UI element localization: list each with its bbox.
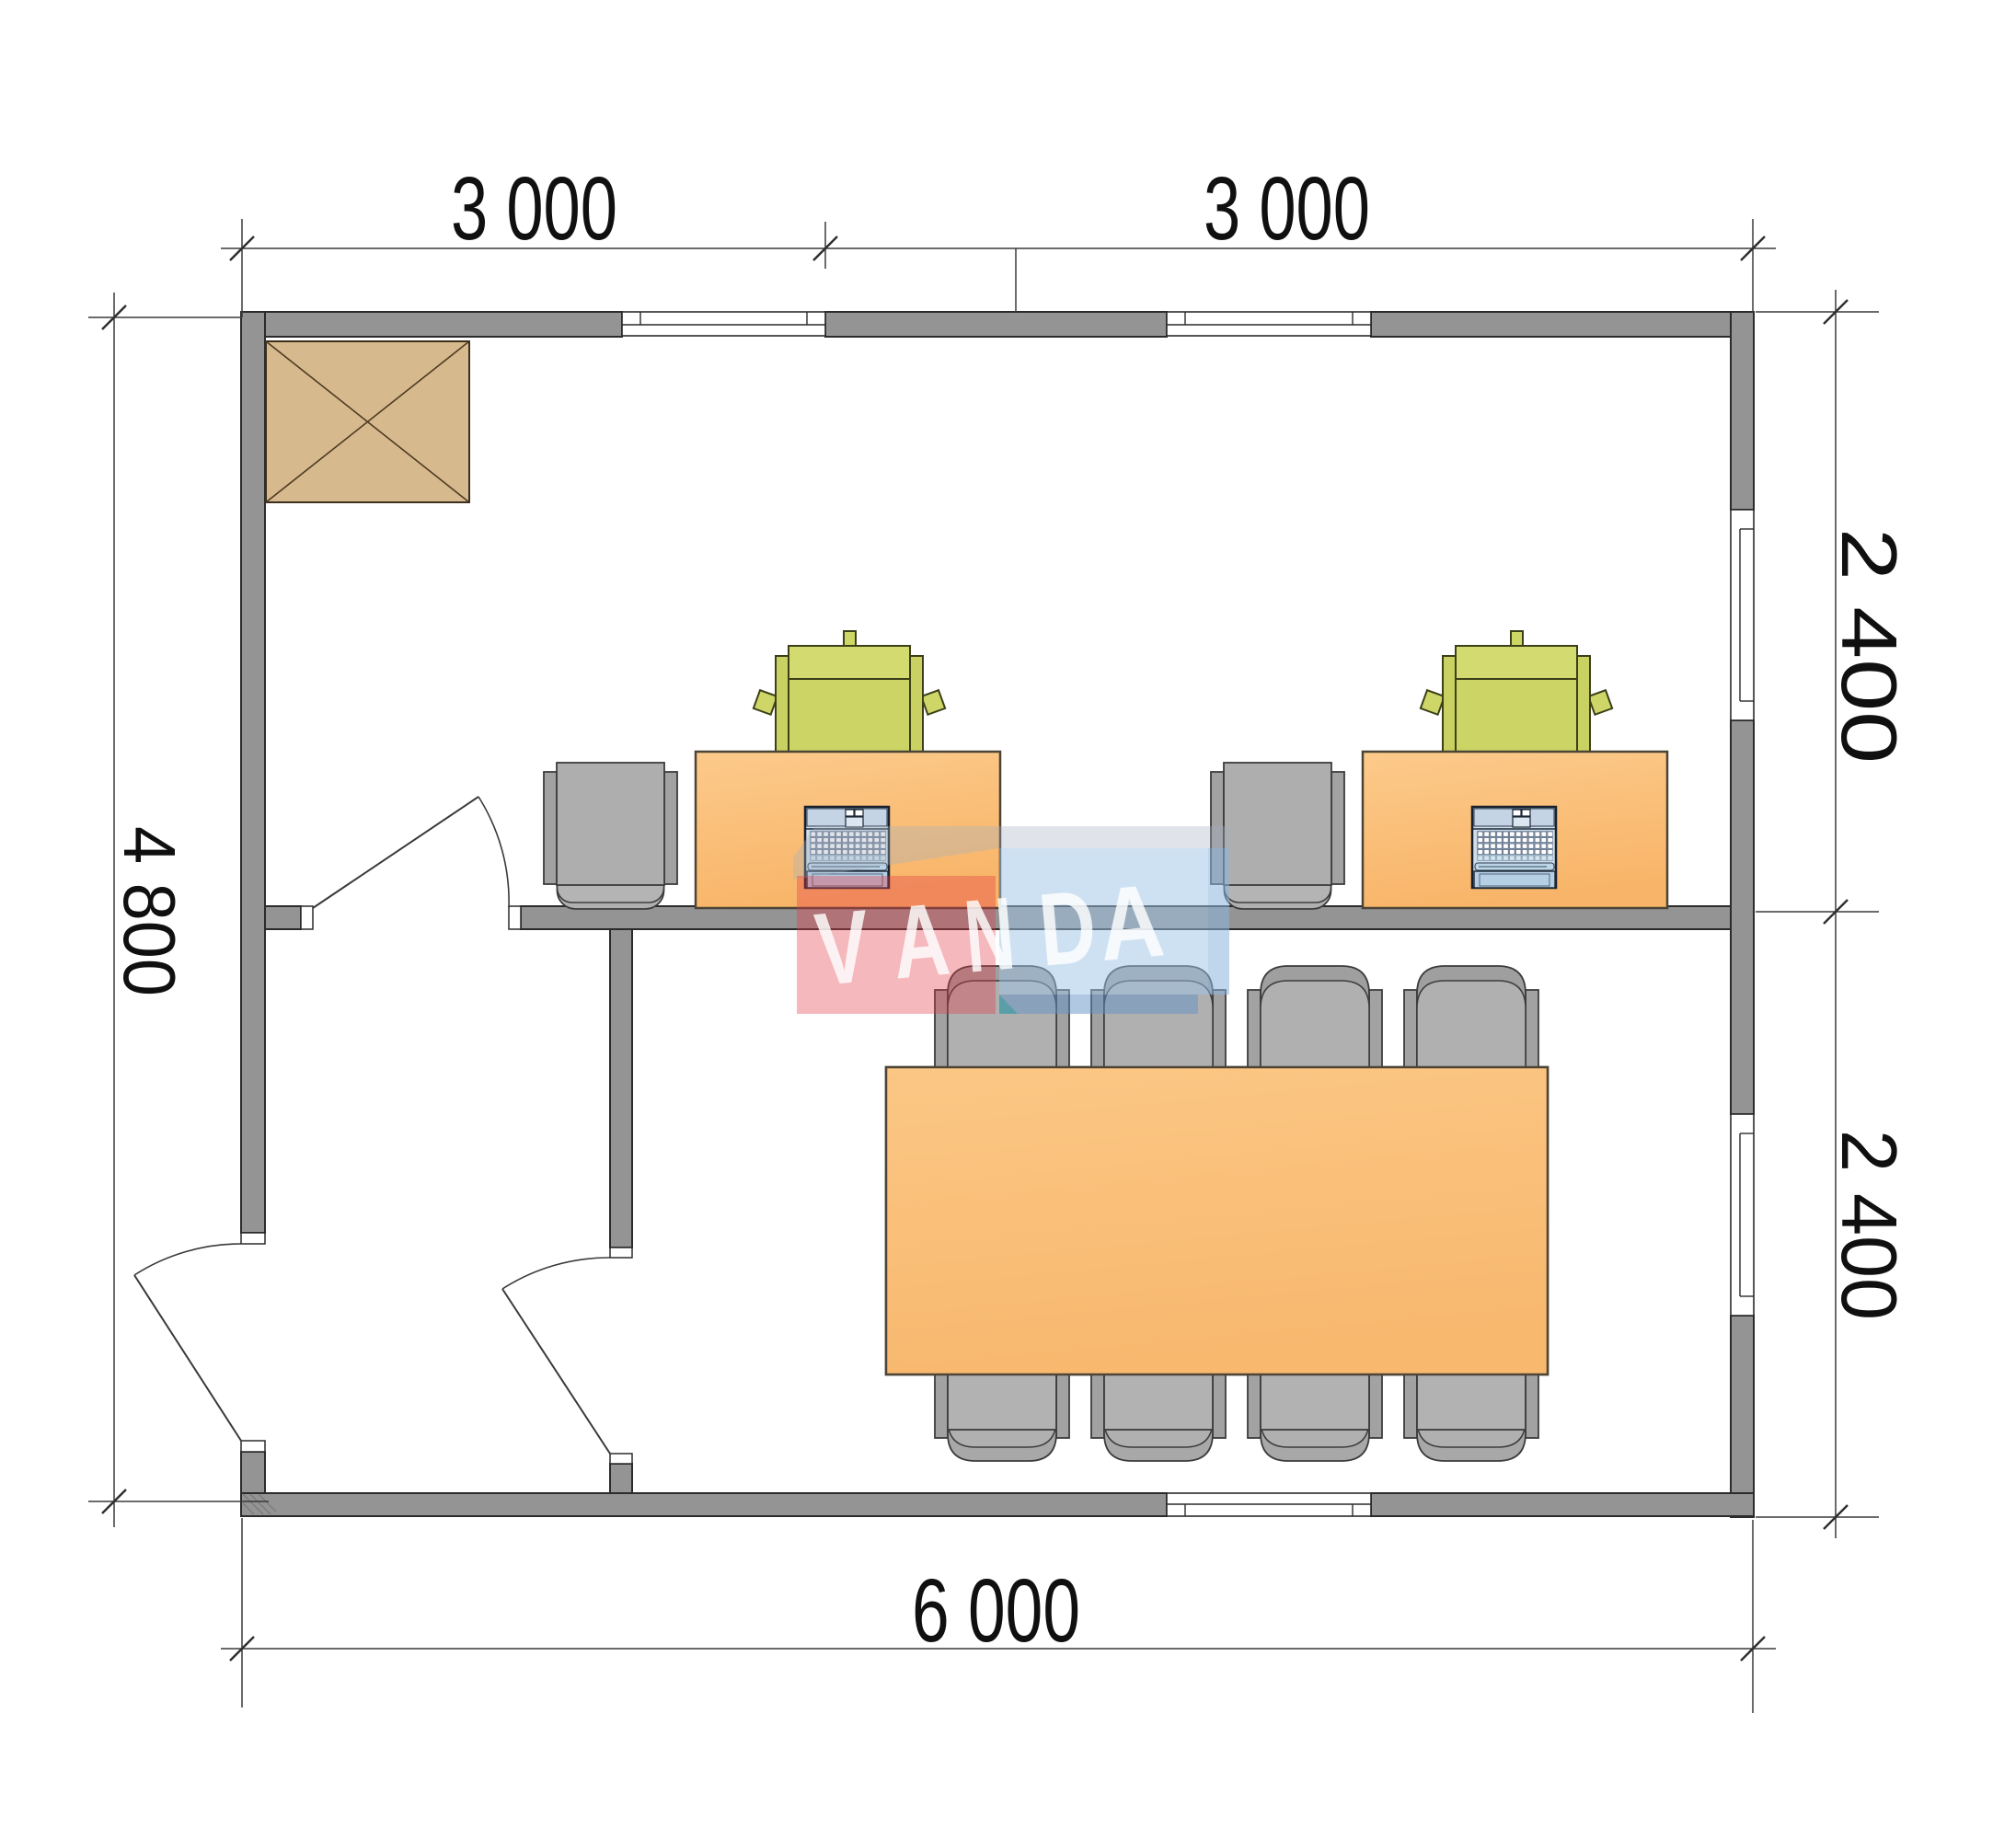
svg-text:2 400: 2 400 [1825, 528, 1912, 764]
svg-text:4 800: 4 800 [109, 826, 190, 996]
svg-text:A: A [1094, 862, 1169, 983]
svg-text:A: A [888, 881, 954, 1001]
svg-text:V: V [811, 888, 874, 1007]
svg-text:N: N [961, 876, 1020, 995]
svg-text:3 000: 3 000 [451, 158, 617, 259]
svg-text:2 400: 2 400 [1825, 1130, 1912, 1320]
svg-text:6 000: 6 000 [912, 1560, 1080, 1661]
svg-text:D: D [1034, 868, 1100, 988]
svg-text:3 000: 3 000 [1204, 158, 1370, 259]
